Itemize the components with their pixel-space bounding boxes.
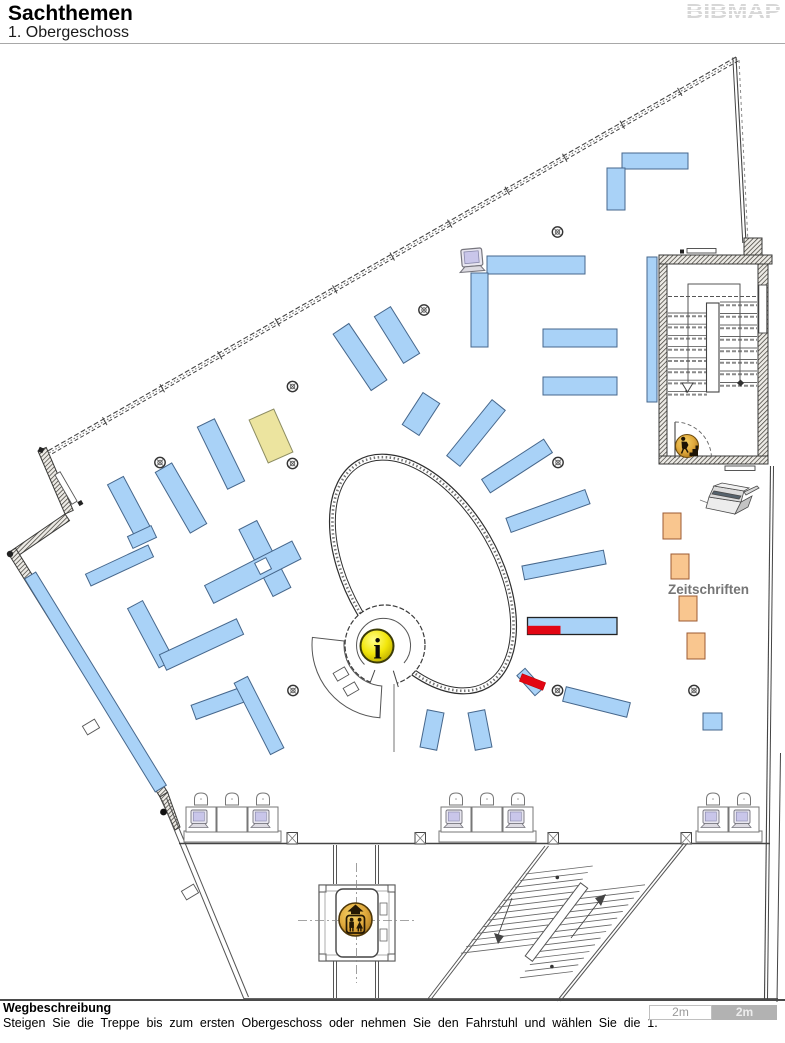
svg-text:i: i [373, 633, 381, 666]
svg-text:Zeitschriften: Zeitschriften [668, 582, 749, 597]
